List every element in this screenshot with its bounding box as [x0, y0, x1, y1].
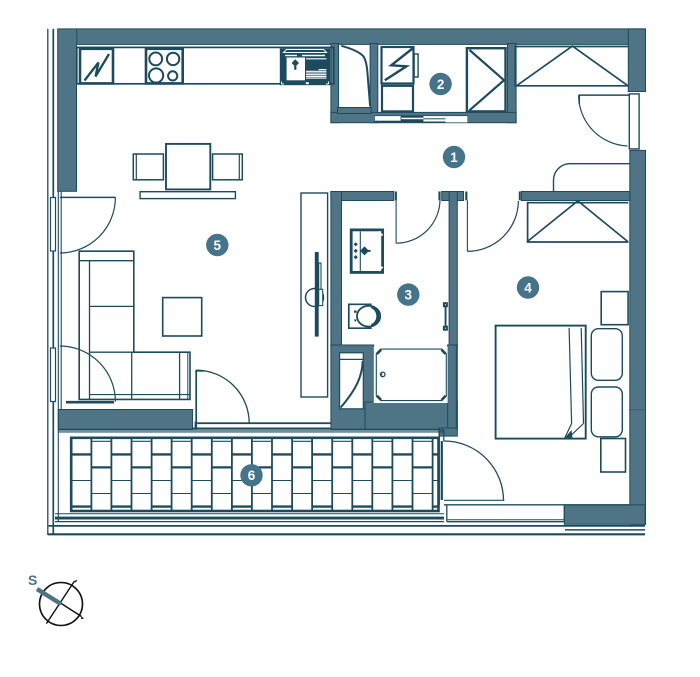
svg-text:4: 4	[524, 280, 532, 295]
svg-text:S: S	[28, 572, 37, 588]
svg-text:5: 5	[214, 238, 222, 253]
svg-text:1: 1	[450, 150, 458, 165]
svg-text:3: 3	[405, 287, 413, 302]
svg-text:2: 2	[437, 77, 445, 92]
svg-text:6: 6	[248, 468, 256, 483]
